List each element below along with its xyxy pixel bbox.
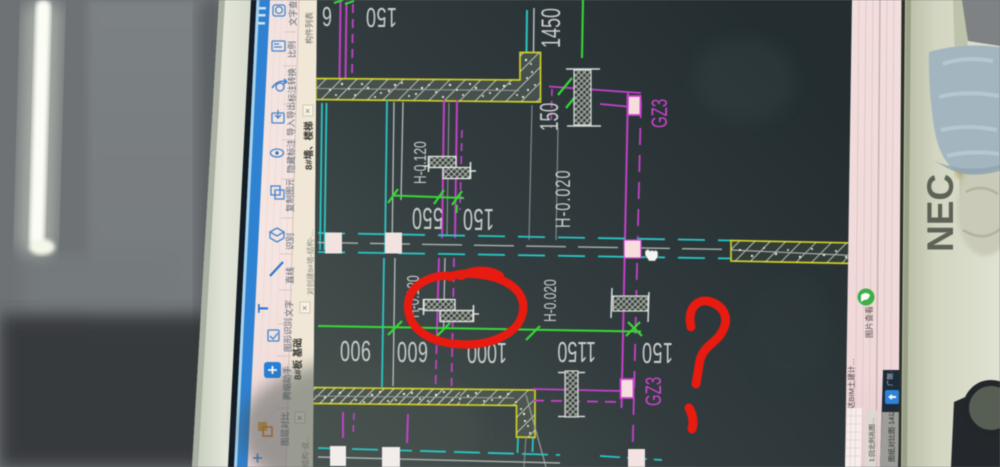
svg-text:识别: 识别 (285, 233, 295, 250)
svg-text:图纸对比图·14以: 图纸对比图·14以 (887, 410, 896, 462)
svg-text:150: 150 (462, 202, 494, 236)
svg-text:150: 150 (365, 2, 397, 33)
svg-text:×: × (305, 106, 310, 116)
svg-text:导入导出: 导入导出 (286, 102, 296, 136)
svg-text:H-0.020: H-0.020 (541, 279, 561, 322)
svg-text:1:回北例兆图…: 1:回北例兆图… (867, 418, 876, 462)
svg-text:NEC: NEC (920, 174, 961, 252)
svg-text:1450: 1450 (535, 8, 566, 48)
svg-text:GZ3: GZ3 (641, 377, 665, 406)
svg-text:900: 900 (339, 334, 371, 366)
svg-text:150: 150 (534, 103, 563, 131)
svg-text:复制图元: 复制图元 (285, 177, 295, 212)
svg-text:150: 150 (641, 336, 673, 368)
svg-text:广醒…: 广醒… (885, 367, 894, 387)
svg-text:文字: 文字 (284, 300, 294, 317)
svg-text:标注转换: 标注转换 (287, 67, 297, 102)
svg-text:8#墙、楼梯: 8#墙、楼梯 (303, 121, 315, 170)
svg-text:隐藏标注: 隐藏标注 (286, 138, 296, 173)
svg-text:比例: 比例 (287, 41, 297, 58)
svg-text:600: 600 (396, 335, 428, 367)
svg-text:H-0.020: H-0.020 (551, 169, 574, 228)
svg-text:直线: 直线 (285, 266, 295, 284)
svg-text:图片查看: 图片查看 (864, 306, 874, 338)
svg-text:GZ3: GZ3 (647, 99, 671, 128)
svg-text:文字查看: 文字查看 (288, 0, 298, 26)
svg-text:T: T (255, 304, 272, 313)
svg-text:×: × (302, 303, 307, 313)
svg-text:550: 550 (411, 201, 443, 235)
svg-text:6: 6 (322, 1, 332, 32)
svg-text:构件列表: 构件列表 (304, 12, 314, 44)
svg-text:对创建8#墙-结构-…: 对创建8#墙-结构-… (305, 229, 315, 295)
svg-text:1150: 1150 (557, 335, 596, 367)
svg-text:图形识别: 图形识别 (283, 318, 293, 352)
